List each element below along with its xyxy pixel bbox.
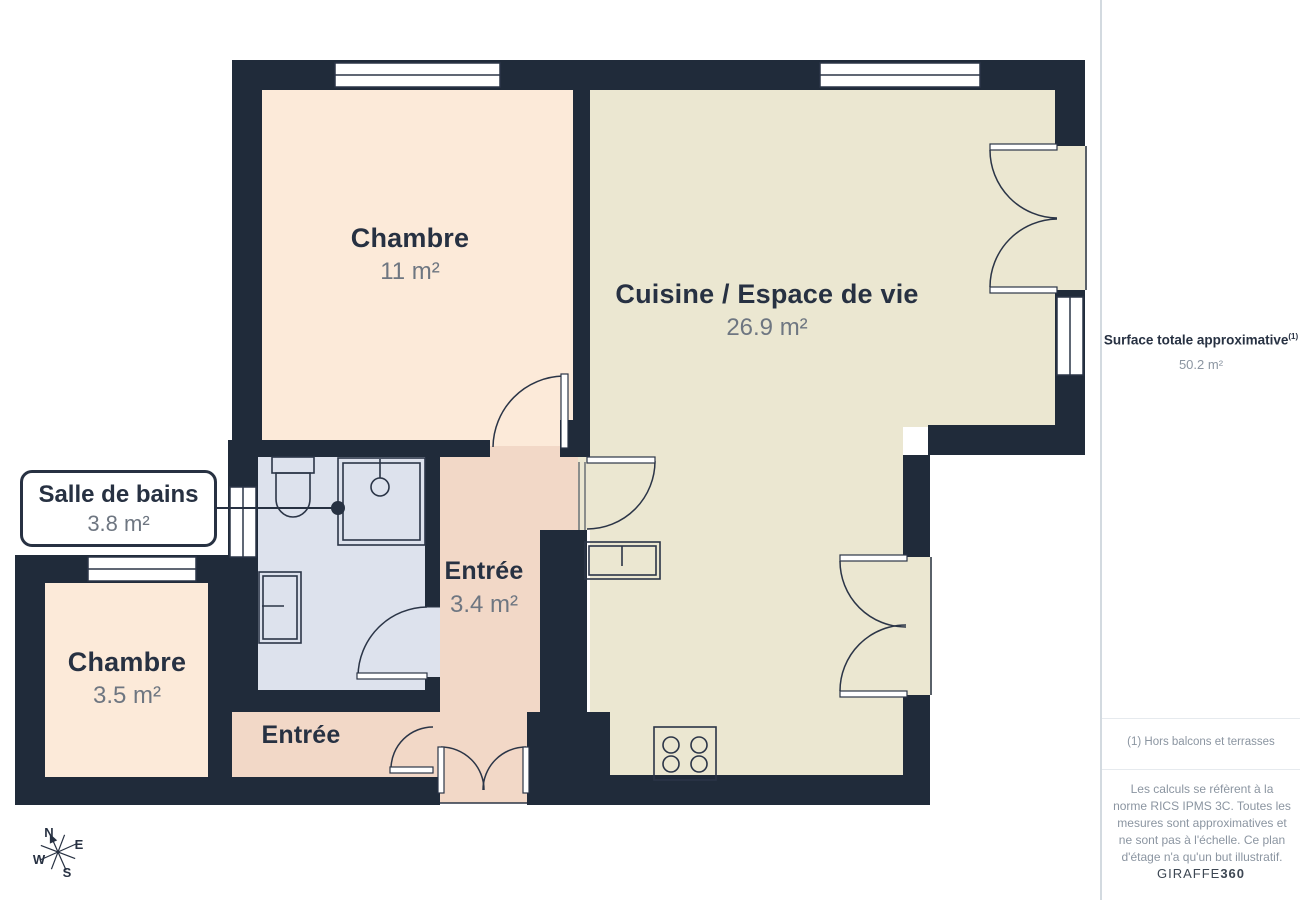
total-surface-value: 50.2 m²	[1102, 357, 1300, 372]
floorplan-drawing: N E W S	[0, 0, 1100, 900]
room-area: 3.5 m²	[68, 680, 186, 712]
room-name: Entrée	[444, 554, 523, 589]
room-area: 3.8 m²	[87, 510, 149, 538]
floorplan-page: N E W S Chambre 11 m² Cuisine / Espace d…	[0, 0, 1300, 900]
room-label-entree-hall: Entrée 3.4 m²	[444, 554, 523, 621]
sidebar-divider	[1102, 769, 1300, 770]
brand-text: GIRAFFE	[1157, 866, 1220, 881]
room-area: 11 m²	[351, 256, 469, 288]
total-surface-block: Surface totale approximative(1) 50.2 m²	[1102, 328, 1300, 372]
room-area: 26.9 m²	[615, 312, 918, 344]
total-surface-title: Surface totale approximative(1)	[1102, 328, 1300, 350]
room-label-chambre-1: Chambre 11 m²	[351, 221, 469, 288]
total-surface-title-text: Surface totale approximative	[1104, 333, 1289, 348]
room-name: Entrée	[261, 718, 340, 753]
info-sidebar: Surface totale approximative(1) 50.2 m² …	[1100, 0, 1300, 900]
room-name: Cuisine / Espace de vie	[615, 277, 918, 312]
total-surface-footnote-marker: (1)	[1288, 332, 1298, 341]
disclaimer-text: Les calculs se réfèrent à la norme RICS …	[1113, 781, 1291, 866]
giraffe360-logo: GIRAFFE360	[1102, 866, 1300, 881]
room-label-entree-corridor: Entrée	[261, 718, 340, 753]
brand-number: 360	[1220, 866, 1245, 881]
sidebar-divider	[1102, 718, 1300, 719]
room-label-chambre-2: Chambre 3.5 m²	[68, 645, 186, 712]
compass: N E W S	[32, 825, 85, 880]
room-name: Salle de bains	[38, 480, 198, 510]
room-bathroom-floor	[258, 457, 425, 690]
compass-n-label: N	[44, 825, 53, 840]
compass-s-label: S	[63, 865, 72, 880]
compass-e-label: E	[75, 837, 84, 852]
room-label-cuisine: Cuisine / Espace de vie 26.9 m²	[615, 277, 918, 344]
bathroom-callout: Salle de bains 3.8 m²	[20, 470, 217, 547]
room-name: Chambre	[351, 221, 469, 256]
room-name: Chambre	[68, 645, 186, 680]
room-area: 3.4 m²	[444, 589, 523, 621]
footnote-text: (1) Hors balcons et terrasses	[1102, 736, 1300, 748]
compass-w-label: W	[33, 852, 46, 867]
